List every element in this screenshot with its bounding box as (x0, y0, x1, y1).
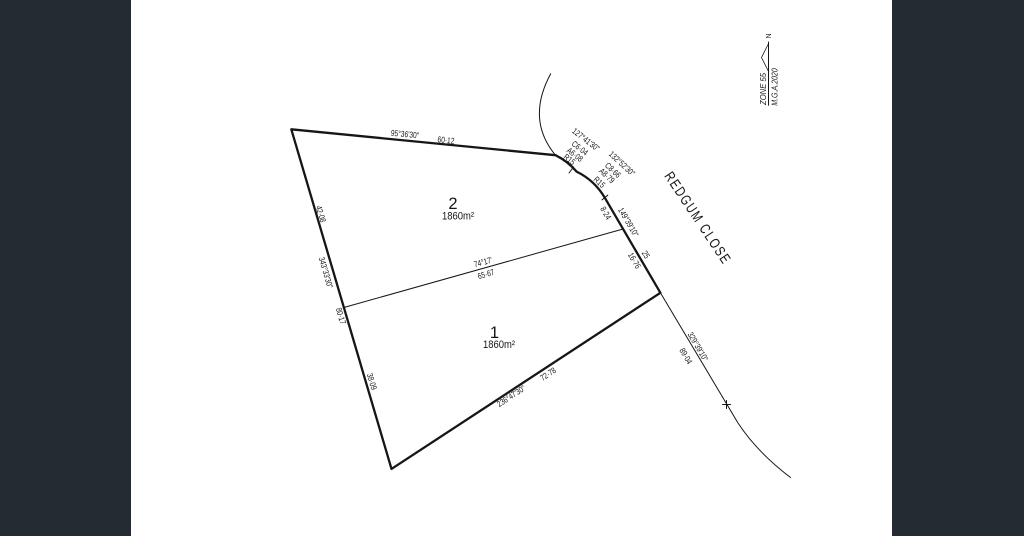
svg-text:236°47'30": 236°47'30" (495, 383, 528, 409)
svg-text:1860m²: 1860m² (442, 211, 474, 223)
svg-text:60·12: 60·12 (437, 134, 455, 146)
svg-text:343°33'30": 343°33'30" (316, 256, 335, 290)
svg-text:42·08: 42·08 (314, 205, 328, 224)
svg-text:72·78: 72·78 (538, 365, 558, 383)
svg-text:M.G.A.2020: M.G.A.2020 (770, 68, 780, 106)
svg-text:REDGUM CLOSE: REDGUM CLOSE (661, 169, 734, 268)
svg-text:N: N (766, 33, 773, 38)
svg-text:ZONE 55: ZONE 55 (758, 73, 768, 106)
svg-text:89·04: 89·04 (677, 346, 695, 366)
svg-text:1860m²: 1860m² (483, 339, 515, 351)
svg-text:80·17: 80·17 (334, 307, 348, 326)
